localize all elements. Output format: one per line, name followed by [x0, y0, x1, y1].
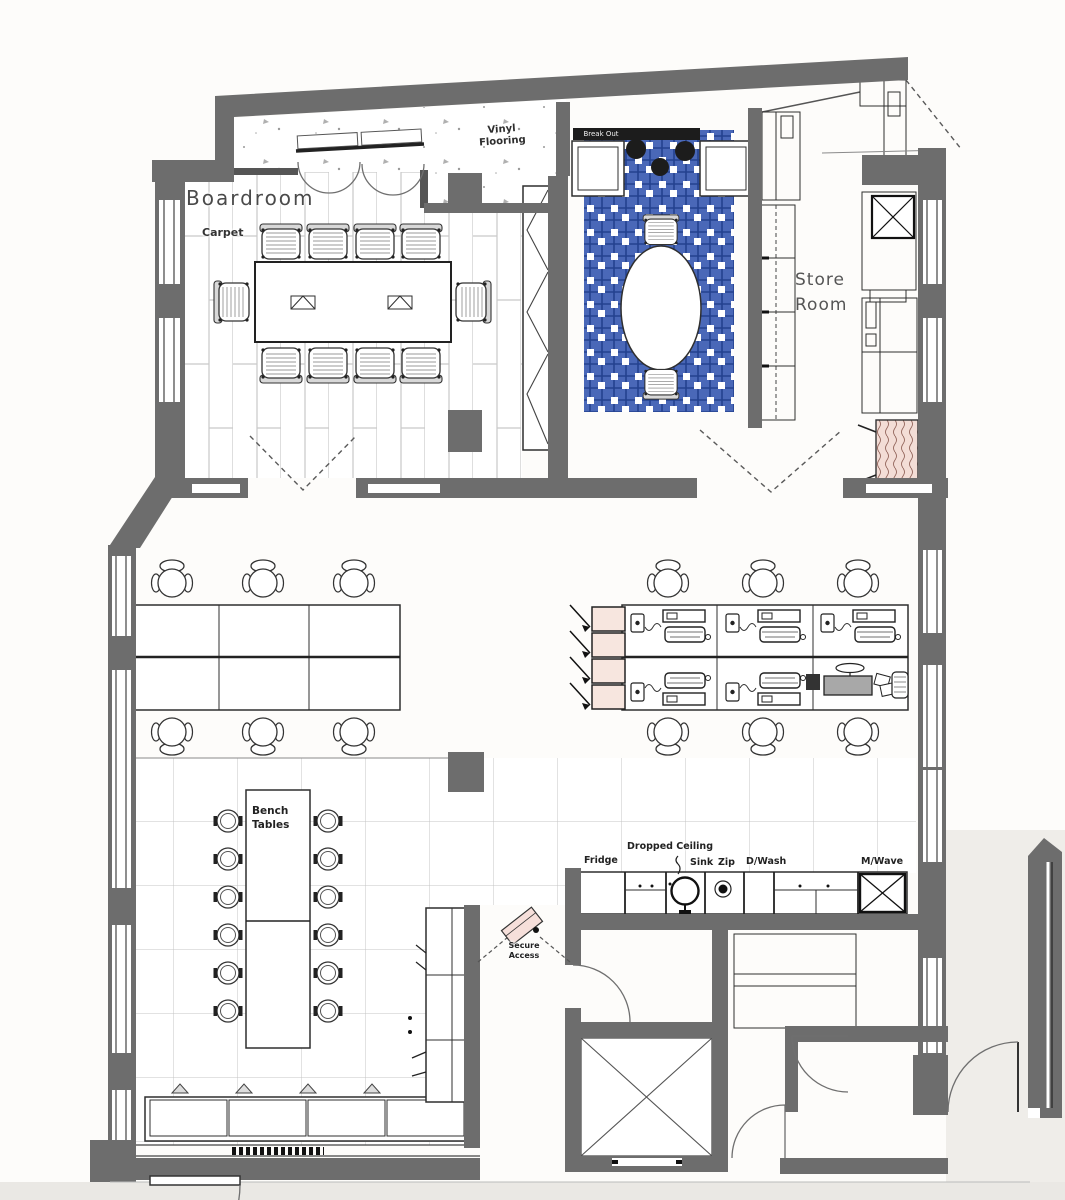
- breakout-cushion: [675, 141, 695, 161]
- label-boardroom: Boardroom: [186, 186, 315, 210]
- floor-plan-page: Boardroom Carpet Vinyl Flooring Break Ou…: [0, 0, 1065, 1200]
- label-break-out: Break Out: [575, 130, 627, 138]
- office-chair: [243, 560, 284, 597]
- zip-tap: [715, 881, 731, 897]
- boardroom-breakout-wall: [548, 176, 568, 478]
- setback-line: [906, 80, 962, 150]
- kitchen-back-wall: [566, 914, 920, 930]
- office-chair: [334, 718, 375, 755]
- office-chair: [648, 560, 689, 597]
- store-cabinet: [862, 290, 917, 413]
- breakout-cushion: [626, 139, 646, 159]
- boardroom-chair: [354, 348, 396, 383]
- door-swing: [792, 1036, 848, 1092]
- store-ac-unit: [862, 192, 916, 290]
- boardroom-chair: [260, 348, 302, 383]
- store-room: [757, 80, 946, 486]
- exterior-wall-fragment: [1028, 838, 1062, 1118]
- boardroom-chair: [307, 224, 349, 259]
- partition-stub: [448, 752, 484, 792]
- boardroom-chair: [214, 281, 249, 323]
- boardroom-chair: [400, 348, 442, 383]
- boardroom-chair: [354, 224, 396, 259]
- wall-bench-seating: [145, 1097, 468, 1141]
- office-chair: [648, 718, 689, 755]
- label-dwash: D/Wash: [746, 856, 786, 867]
- pedestals: [570, 605, 625, 710]
- lobby-wall-left: [464, 905, 480, 1148]
- breakout-cushion: [651, 158, 669, 176]
- office-chair: [743, 560, 784, 597]
- boardroom-chair: [307, 348, 349, 383]
- breakout-store-wall: [748, 108, 762, 428]
- conference-table: [255, 262, 451, 342]
- office-chair: [838, 560, 879, 597]
- office-chair: [334, 560, 375, 597]
- label-store-room: Store Room: [795, 268, 847, 317]
- breakout-chair: [643, 369, 679, 399]
- folding-partition-stack: [523, 186, 550, 450]
- breakout-chair: [643, 215, 679, 245]
- breakout-bench-right: [700, 141, 752, 196]
- store-shelving: [757, 205, 795, 420]
- label-dropped-ceiling: Dropped Ceiling: [627, 841, 713, 852]
- label-carpet: Carpet: [202, 226, 244, 239]
- label-fridge: Fridge: [584, 855, 618, 866]
- back-counter: [734, 934, 856, 1028]
- lift: [581, 1038, 712, 1156]
- boardroom-chair: [400, 224, 442, 259]
- office-chair: [243, 718, 284, 755]
- desk-cluster-left: [128, 605, 400, 710]
- label-mwave: M/Wave: [861, 856, 903, 867]
- label-bench-tables: Bench Tables: [252, 805, 289, 832]
- open-office: [110, 560, 908, 792]
- label-secure-access: Secure Access: [498, 941, 550, 961]
- office-chair: [152, 560, 193, 597]
- store-radiator: [858, 420, 918, 486]
- office-chair: [838, 718, 879, 755]
- boardroom-chair: [456, 281, 491, 323]
- door-swing: [732, 1105, 785, 1158]
- breakout-oval-table: [621, 246, 701, 370]
- office-chair: [152, 718, 193, 755]
- label-zip: Zip: [718, 857, 735, 868]
- label-sink: Sink: [690, 857, 713, 868]
- boardroom-chair: [260, 224, 302, 259]
- breakout-bench-left: [572, 141, 624, 196]
- floorplan-linework: [0, 0, 1065, 1200]
- office-chair: [743, 718, 784, 755]
- microwave: [860, 874, 905, 912]
- boardroom-top-wall: [234, 168, 298, 175]
- column: [448, 410, 482, 452]
- breakout-folding-door: [700, 430, 842, 492]
